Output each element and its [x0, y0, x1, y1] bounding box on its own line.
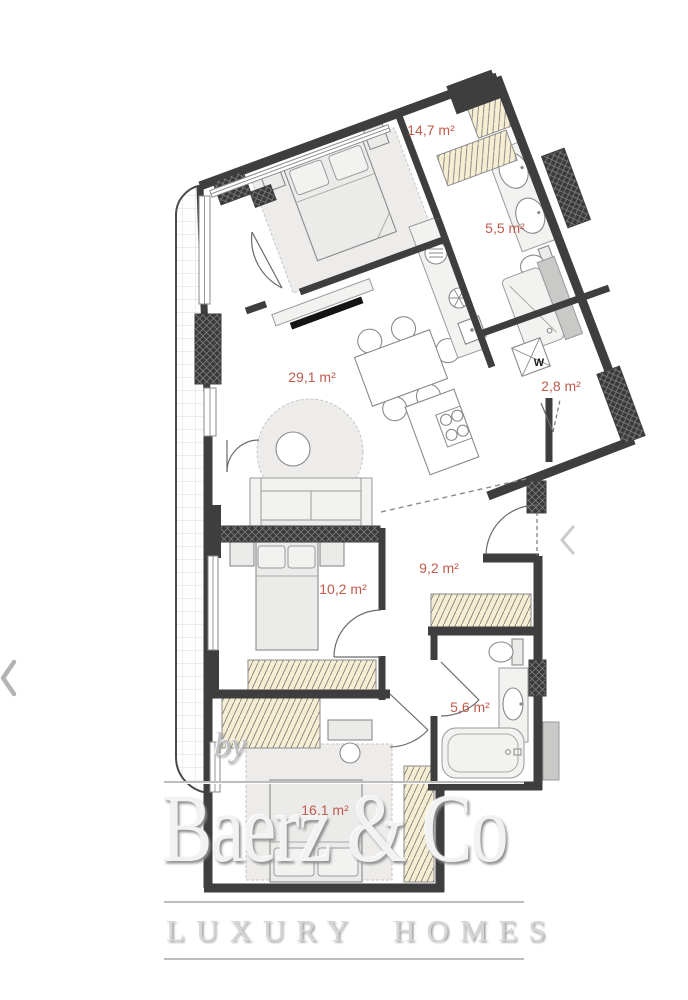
watermark-tagline: LUXURY HOMES	[166, 913, 557, 949]
watermark-rule-bottom	[164, 958, 524, 960]
watermark-rule-middle	[164, 901, 524, 903]
label-bedroom-1: 14,7 m²	[407, 122, 455, 138]
chevron-left-watermark-icon	[562, 527, 573, 553]
label-bedroom-2: 10,2 m²	[319, 581, 367, 597]
label-hallway: 9,2 m²	[419, 560, 459, 576]
watermark-brand: Baerz & Co	[162, 780, 507, 878]
wardrobe-hallway	[431, 594, 531, 628]
wardrobe-bedroom-2	[248, 660, 376, 692]
living-sofa	[250, 478, 372, 528]
watermark-by: by	[214, 727, 246, 765]
label-living-kitchen: 29,1 m²	[288, 369, 336, 385]
floorplan-page: W	[0, 0, 688, 1000]
label-wc: 2,8 m²	[541, 378, 581, 394]
washing-machine-label: W	[534, 357, 545, 369]
bathroom-2-bathtub	[442, 728, 524, 778]
hanging-chair	[276, 432, 310, 466]
carousel-prev-icon[interactable]	[3, 662, 14, 694]
label-bathroom-2: 5,6 m²	[450, 699, 490, 715]
service-shaft	[543, 722, 559, 780]
label-bathroom-1: 5,5 m²	[485, 220, 525, 236]
